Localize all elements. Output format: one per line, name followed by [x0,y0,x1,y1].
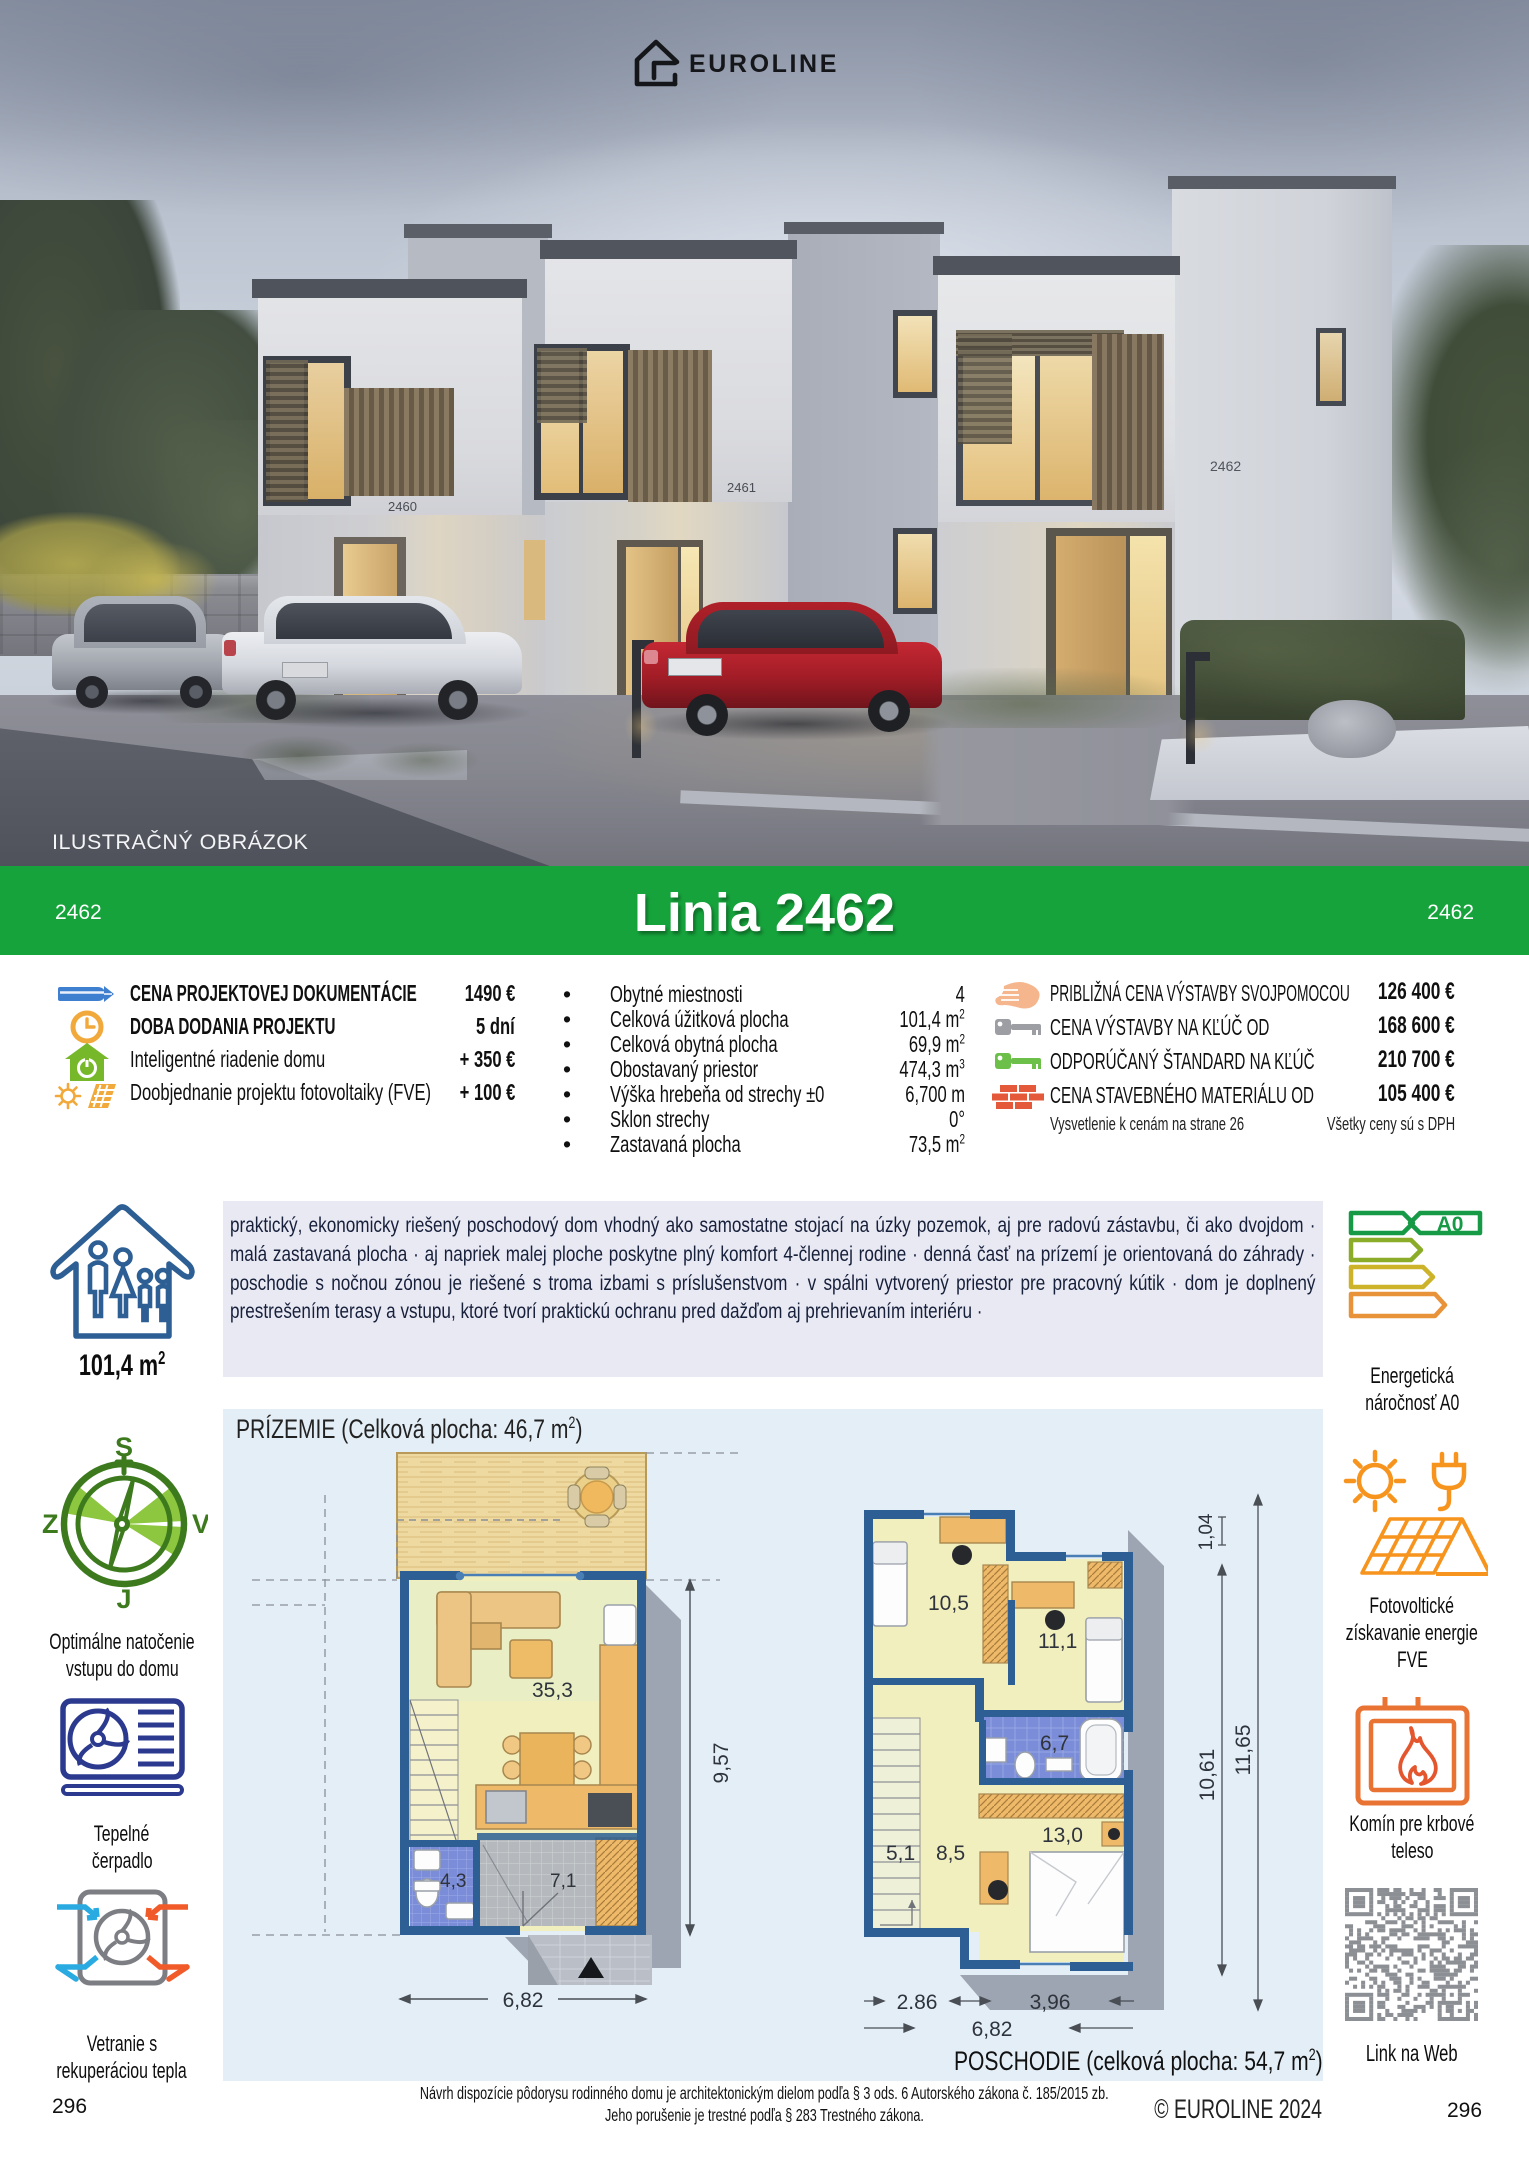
svg-text:5,1: 5,1 [886,1842,915,1865]
svg-text:7,1: 7,1 [550,1871,576,1892]
svg-text:13,0: 13,0 [1042,1824,1083,1847]
svg-text:8,5: 8,5 [936,1842,965,1865]
svg-text:6,82: 6,82 [972,2018,1013,2041]
svg-text:6,7: 6,7 [1040,1732,1069,1755]
svg-text:V: V [192,1509,208,1539]
svg-text:10,61: 10,61 [1196,1749,1219,1802]
svg-text:J: J [116,1584,131,1611]
svg-text:11,1: 11,1 [1038,1630,1077,1653]
svg-text:6,82: 6,82 [503,1989,544,2012]
svg-text:35,3: 35,3 [532,1679,573,1702]
svg-text:Z: Z [42,1509,59,1539]
svg-text:A0: A0 [1437,1213,1464,1236]
svg-text:2.86: 2.86 [897,1991,938,2014]
svg-text:3,96: 3,96 [1030,1991,1071,2014]
svg-text:9,57: 9,57 [710,1743,733,1784]
svg-text:1,04: 1,04 [1196,1513,1217,1550]
svg-text:10,5: 10,5 [928,1592,969,1615]
svg-text:11,65: 11,65 [1232,1725,1255,1776]
svg-text:4,3: 4,3 [440,1871,466,1892]
svg-text:EUROLINE: EUROLINE [689,50,839,78]
